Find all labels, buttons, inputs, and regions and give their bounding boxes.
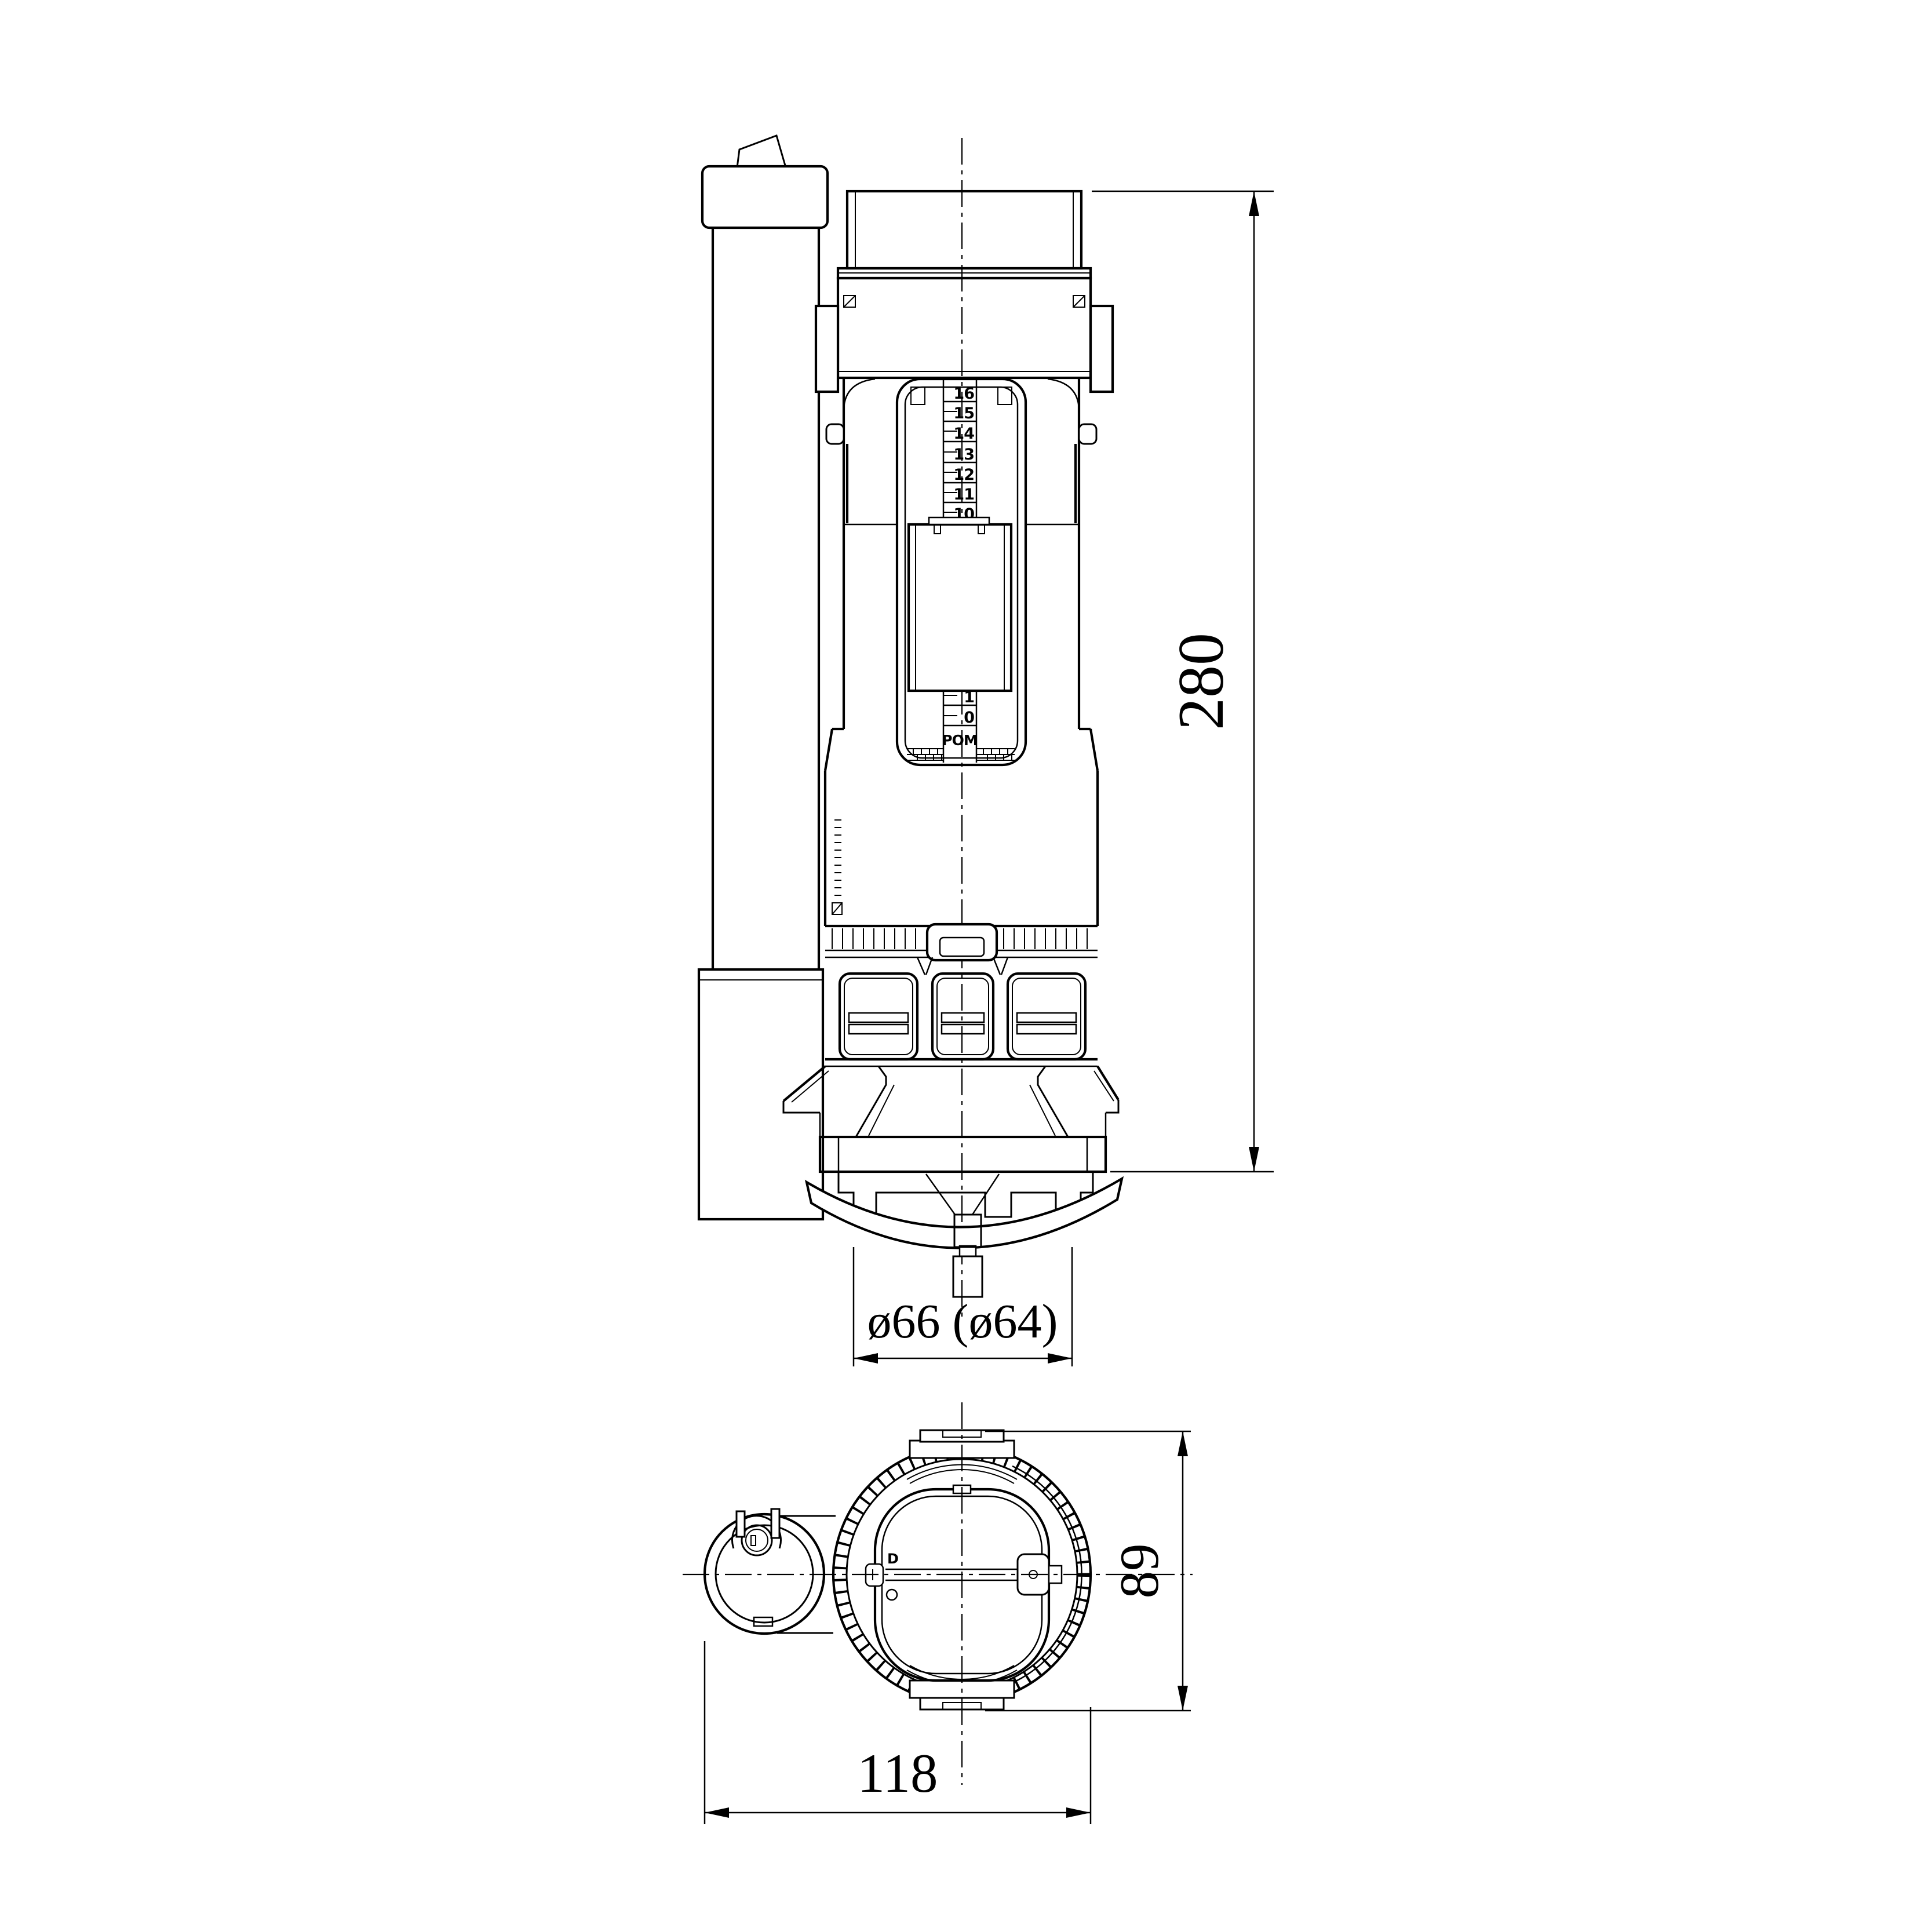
base-gasket	[820, 1137, 1106, 1172]
serrated-ring	[825, 924, 1098, 960]
flush-openings-plate: D	[866, 1485, 1062, 1681]
flush-valve-technical-drawing: 16 15 14 13 12 11 10 1 0 POM	[0, 0, 1932, 1932]
spring-clip-right	[1079, 424, 1096, 444]
overflow-housing	[699, 969, 823, 1219]
overflow-lever	[737, 136, 786, 167]
scale-label-13: 13	[953, 446, 974, 464]
dimension-outlet: ø66 (ø64)	[854, 1247, 1072, 1366]
molded-text-strip	[834, 820, 841, 895]
overflow-tube	[699, 136, 828, 1219]
side-tab-left	[816, 306, 838, 392]
scale-label-11: 11	[953, 486, 974, 504]
bottom-view: D 118	[683, 1402, 1193, 1824]
adjustment-scale-lower: 1 0 POM	[942, 688, 977, 763]
dim-depth-label: 89	[1109, 1544, 1170, 1599]
overflow-port	[705, 1509, 836, 1634]
dimension-height: 280	[1092, 191, 1274, 1172]
dimension-width: 118	[705, 1641, 1091, 1824]
mold-circle-mark	[887, 1590, 897, 1600]
dim-outlet-label: ø66 (ø64)	[867, 1295, 1058, 1348]
side-tab-right	[1091, 306, 1113, 392]
dim-width-label: 118	[858, 1743, 938, 1804]
seal-washer-arc	[807, 1179, 1122, 1248]
scale-label-0: 0	[964, 709, 974, 727]
material-label: POM	[942, 732, 977, 749]
scale-label-16: 16	[953, 385, 974, 403]
scale-label-1: 1	[964, 688, 974, 706]
inlet-port	[838, 191, 1091, 278]
overflow-cap	[702, 166, 828, 228]
adjustment-scale-upper: 16 15 14 13 12 11 10	[943, 379, 976, 524]
valve-base	[783, 1059, 1118, 1217]
overflow-tube-walls	[713, 228, 819, 969]
dim-height-label: 280	[1165, 633, 1237, 730]
float-block	[909, 517, 1011, 691]
front-view: 16 15 14 13 12 11 10 1 0 POM	[699, 136, 1274, 1366]
drawing-sheet: 16 15 14 13 12 11 10 1 0 POM	[0, 0, 1932, 1932]
scale-label-14: 14	[953, 425, 974, 443]
scale-label-12: 12	[953, 466, 974, 484]
scale-label-15: 15	[953, 404, 974, 422]
ring-latch-tab	[927, 924, 997, 960]
spring-clip-left	[826, 424, 844, 444]
valve-cap	[816, 278, 1113, 392]
mold-letter-d: D	[887, 1551, 899, 1567]
